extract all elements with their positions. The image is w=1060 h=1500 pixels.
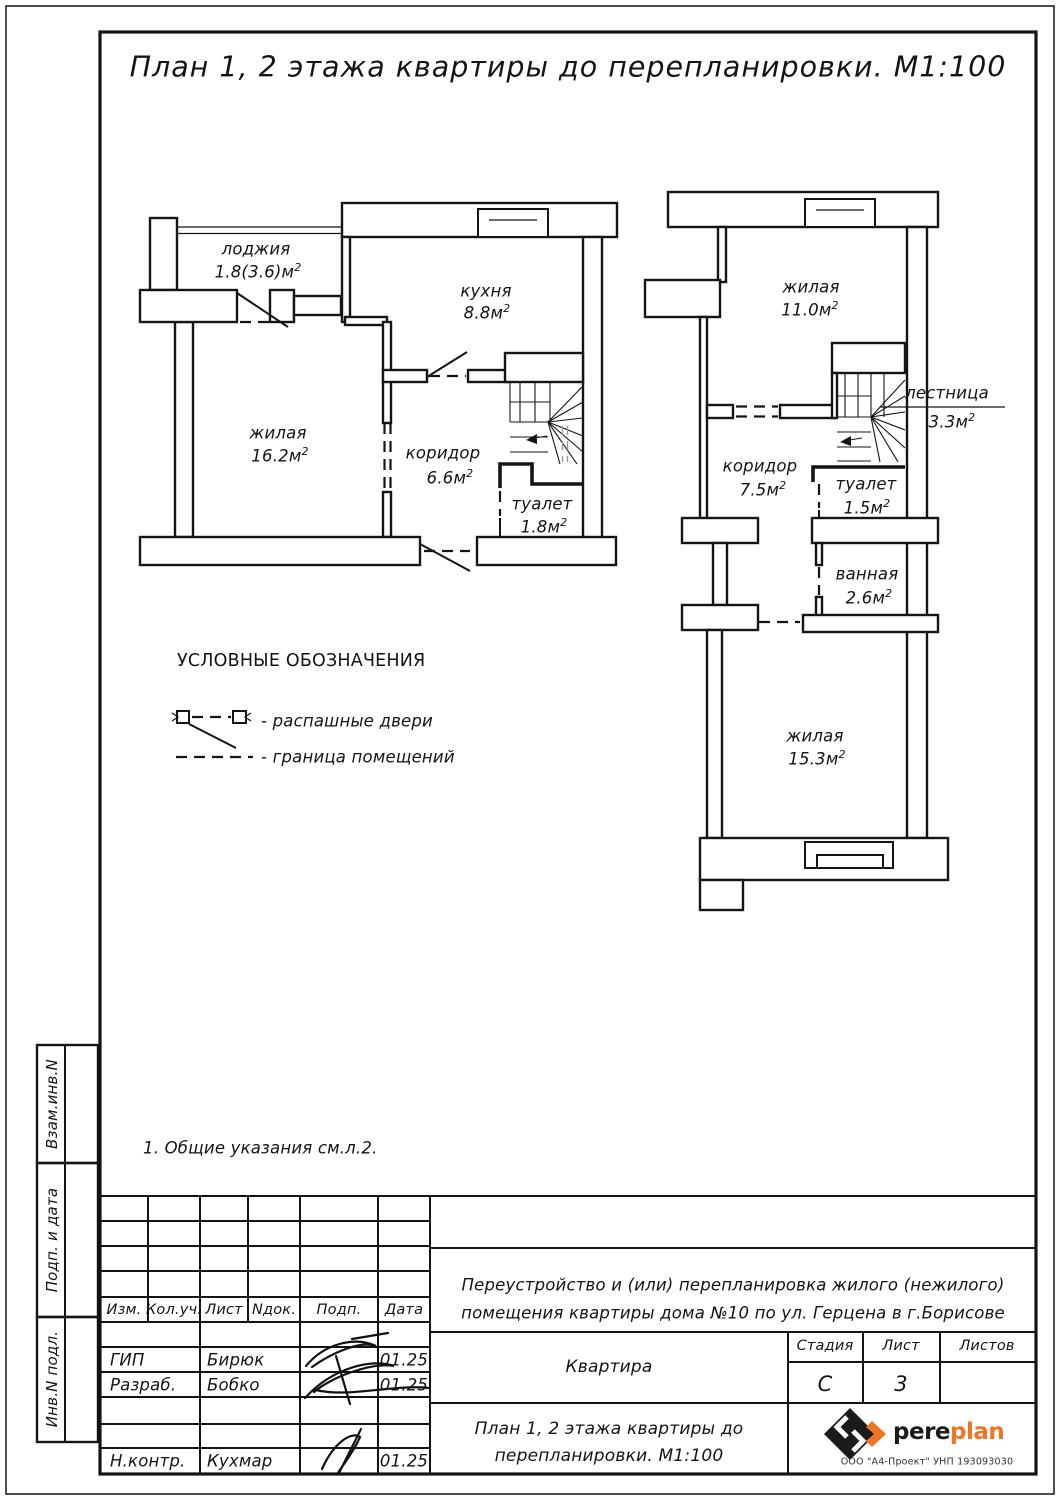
room-label-corridor-f2: коридор	[723, 457, 798, 476]
legend-title: УСЛОВНЫЕ ОБОЗНАЧЕНИЯ	[177, 651, 425, 671]
room-label-corridor-f1: коридор	[406, 444, 481, 463]
stage-value: С	[818, 1372, 833, 1396]
stamp-col-kol: Кол.уч.	[146, 1302, 202, 1318]
legend-doors-label: - распашные двери	[261, 712, 433, 731]
stage-label: Стадия	[797, 1338, 854, 1354]
object-name: Квартира	[565, 1357, 652, 1377]
room-label-living-f1: жилая	[249, 424, 306, 443]
stamp-name-nkontr: Кухмар	[207, 1452, 272, 1471]
room-area-stairs: 3.3м2	[929, 411, 976, 432]
project-title-line1: Переустройство и (или) перепланировка жи…	[462, 1276, 1005, 1295]
drawing-title-line1: План 1, 2 этажа квартиры до	[475, 1419, 744, 1439]
room-area-living2-f2: 15.3м2	[788, 748, 845, 769]
sheets-label: Листов	[959, 1338, 1014, 1354]
stamp-date-razrab: 01.25	[380, 1376, 428, 1395]
room-area-wc-f2: 1.5м2	[844, 497, 891, 518]
stamp-date-nkontr: 01.25	[380, 1452, 428, 1471]
stamp-col-list: Лист	[205, 1302, 243, 1318]
pereplan-logo-icon	[824, 1408, 886, 1460]
room-area-corridor-f1: 6.6м2	[427, 467, 474, 488]
general-note: 1. Общие указания см.л.2.	[143, 1139, 378, 1158]
page-title: План 1, 2 этажа квартиры до перепланиров…	[130, 51, 1007, 84]
stamp-col-data: Дата	[385, 1302, 423, 1318]
stamp-col-ndok: Nдок.	[252, 1302, 296, 1318]
stamp-role-razrab: Разраб.	[110, 1376, 176, 1395]
stamp-col-izm: Изм.	[107, 1302, 142, 1318]
room-label-living2-f2: жилая	[786, 727, 843, 746]
stamp-name-razrab: Бобко	[207, 1376, 260, 1395]
room-label-living-f2: жилая	[782, 278, 839, 297]
room-area-bath: 2.6м2	[846, 587, 893, 608]
stamp-col-podp: Подп.	[317, 1302, 362, 1318]
room-label-stairs: лестница	[905, 384, 989, 403]
room-label-wc-f2: туалет	[836, 475, 897, 494]
side-label-inv: Инв.N подл.	[43, 1331, 61, 1428]
room-label-loggia: лоджия	[222, 240, 291, 259]
pereplan-logo-text: pereplan	[893, 1419, 1004, 1445]
room-area-wc-f1: 1.8м2	[521, 516, 568, 537]
company-info: ООО "А4-Проект" УНП 193093030	[841, 1457, 1014, 1468]
room-area-living-f1: 16.2м2	[251, 445, 308, 466]
room-label-kitchen-f1: кухня	[460, 282, 511, 301]
room-label-bath: ванная	[836, 565, 899, 584]
legend-boundary-label: - граница помещений	[261, 748, 455, 767]
drawing-title-line2: перепланировки. М1:100	[495, 1446, 724, 1466]
side-label-podp: Подп. и дата	[43, 1188, 61, 1293]
legend-symbols	[172, 711, 253, 757]
stamp-date-gip: 01.25	[380, 1351, 428, 1370]
stamp-role-nkontr: Н.контр.	[110, 1452, 185, 1471]
drawing-sheet: План 1, 2 этажа квартиры до перепланиров…	[0, 0, 1060, 1500]
sheet-label: Лист	[882, 1338, 920, 1354]
room-label-wc-f1: туалет	[512, 495, 573, 514]
stamp-name-gip: Бирюк	[207, 1351, 264, 1370]
project-title-line2: помещения квартиры дома №10 по ул. Герце…	[461, 1304, 1005, 1323]
stamp-role-gip: ГИП	[110, 1351, 145, 1370]
sheet-value: 3	[894, 1372, 908, 1396]
side-label-vzam: Взам.инв.N	[43, 1059, 61, 1149]
room-area-loggia: 1.8(3.6)м2	[215, 261, 302, 282]
room-area-corridor-f2: 7.5м2	[740, 479, 787, 500]
room-area-kitchen-f1: 8.8м2	[464, 302, 511, 323]
room-area-living-f2: 11.0м2	[781, 299, 838, 320]
